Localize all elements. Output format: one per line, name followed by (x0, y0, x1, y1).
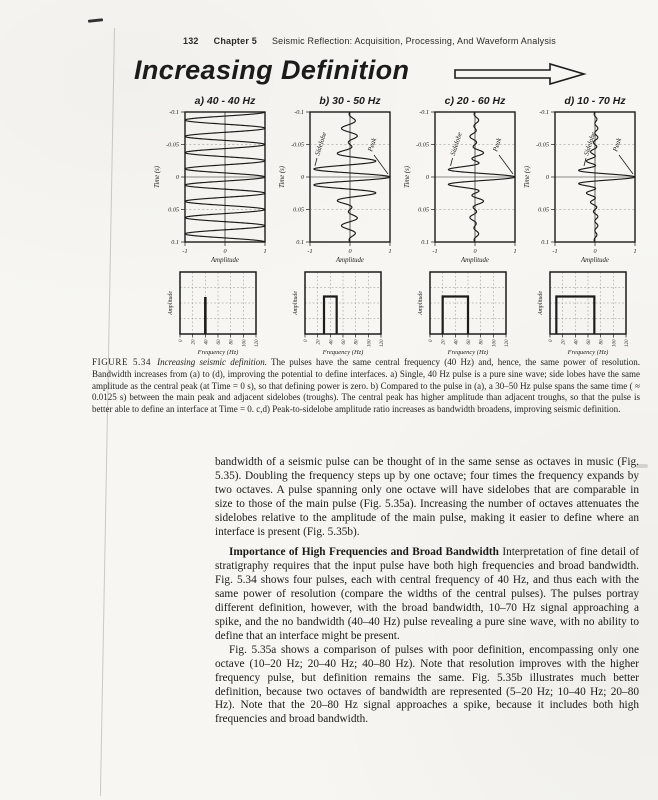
spectrum-panel-c: 020406080100120Frequency (Hz)Amplitude (400, 268, 528, 360)
page-number: 132 (183, 36, 199, 46)
svg-text:Time (s): Time (s) (404, 165, 411, 188)
right-arrow-icon (453, 61, 589, 87)
svg-text:60: 60 (467, 339, 472, 345)
svg-text:100: 100 (612, 339, 617, 347)
chapter-label: Chapter 5 (214, 36, 257, 46)
svg-text:0: 0 (549, 339, 554, 342)
svg-text:-0.05: -0.05 (291, 142, 304, 149)
svg-text:0: 0 (348, 248, 352, 255)
svg-text:20: 20 (442, 339, 447, 345)
svg-text:20: 20 (317, 339, 322, 345)
peak-leader (619, 155, 633, 174)
svg-text:0: 0 (179, 339, 184, 342)
svg-text:Amplitude: Amplitude (293, 291, 299, 316)
spectrum-panel-a: 020406080100120Frequency (Hz)Amplitude (150, 268, 278, 360)
figure-banner-title: Increasing Definition (134, 55, 409, 86)
svg-text:Frequency (Hz): Frequency (Hz) (447, 349, 489, 356)
running-header: 132Chapter 5Seismic Reflection: Acquisit… (183, 36, 556, 46)
peak-label: Peak (491, 136, 504, 154)
svg-text:100: 100 (367, 339, 372, 347)
chapter-title: Seismic Reflection: Acquisition, Process… (272, 36, 556, 46)
svg-text:0.1: 0.1 (296, 239, 304, 246)
sidelobe-label: Sidelobe (449, 131, 464, 156)
figure-caption: FIGURE 5.34Increasing seismic definition… (92, 357, 640, 416)
pulse-panel-d: d) 10 - 70 Hz-0.1-0.0500.050.1-101Amplit… (520, 92, 648, 270)
svg-text:80: 80 (480, 339, 485, 345)
svg-text:1: 1 (633, 248, 636, 255)
svg-text:100: 100 (492, 339, 497, 347)
svg-text:0.05: 0.05 (168, 207, 179, 214)
svg-text:-0.1: -0.1 (539, 109, 549, 116)
svg-text:Amplitude: Amplitude (335, 257, 364, 264)
svg-text:-1: -1 (432, 248, 437, 255)
spectrum-panel-d: 020406080100120Frequency (Hz)Amplitude (520, 268, 648, 360)
svg-text:60: 60 (587, 339, 592, 345)
svg-text:120: 120 (380, 339, 385, 347)
pulse-panel-title: c) 20 - 60 Hz (445, 95, 506, 107)
peak-label: Peak (611, 136, 624, 154)
pulse-panel-a: a) 40 - 40 Hz-0.1-0.0500.050.1-101Amplit… (150, 92, 278, 270)
pulse-panel-title: b) 30 - 50 Hz (319, 95, 381, 107)
svg-text:40: 40 (329, 339, 334, 345)
svg-text:20: 20 (192, 339, 197, 345)
svg-text:Frequency (Hz): Frequency (Hz) (567, 349, 609, 356)
sidelobe-leader (584, 158, 586, 166)
svg-text:Amplitude: Amplitude (210, 257, 239, 264)
svg-text:0: 0 (593, 248, 597, 255)
figure-caption-label: FIGURE 5.34 (92, 357, 151, 367)
sidelobe-label: Sidelobe (313, 131, 328, 156)
svg-text:1: 1 (263, 248, 266, 255)
pulse-panel-title: d) 10 - 70 Hz (564, 95, 626, 107)
svg-text:-0.1: -0.1 (419, 109, 429, 116)
pulse-panel-c: c) 20 - 60 Hz-0.1-0.0500.050.1-101Amplit… (400, 92, 528, 270)
peak-leader (374, 155, 388, 174)
svg-text:0.1: 0.1 (171, 239, 179, 246)
svg-text:-0.1: -0.1 (169, 109, 179, 116)
paragraph-importance: Importance of High Frequencies and Broad… (215, 546, 639, 643)
paragraph-fig535: Fig. 5.35a shows a comparison of pulses … (215, 644, 639, 727)
svg-text:20: 20 (562, 339, 567, 345)
svg-text:-0.1: -0.1 (294, 109, 304, 116)
svg-text:0.05: 0.05 (418, 207, 429, 214)
svg-text:Amplitude: Amplitude (580, 257, 609, 264)
svg-text:120: 120 (505, 339, 510, 347)
peak-label: Peak (366, 136, 379, 154)
svg-text:100: 100 (242, 339, 247, 347)
svg-text:0: 0 (301, 174, 305, 181)
svg-text:0: 0 (223, 248, 227, 255)
sidelobe-leader (315, 158, 317, 166)
svg-text:-0.05: -0.05 (416, 142, 429, 149)
svg-text:-0.05: -0.05 (166, 142, 179, 149)
run-in-heading: Importance of High Frequencies and Broad… (229, 546, 499, 558)
svg-text:0: 0 (546, 174, 550, 181)
svg-text:40: 40 (574, 339, 579, 345)
svg-text:Time (s): Time (s) (524, 165, 531, 188)
svg-text:0: 0 (426, 174, 430, 181)
sidelobe-leader (451, 158, 453, 166)
svg-text:Amplitude: Amplitude (460, 257, 489, 264)
paragraph-importance-text: Interpretation of fine detail of stratig… (215, 546, 639, 641)
svg-text:Time (s): Time (s) (154, 165, 161, 188)
svg-text:Amplitude: Amplitude (168, 291, 174, 316)
book-page: 132Chapter 5Seismic Reflection: Acquisit… (0, 0, 658, 800)
figure-5-34: a) 40 - 40 Hz-0.1-0.0500.050.1-101Amplit… (0, 92, 658, 358)
body-text: bandwidth of a seismic pulse can be thou… (215, 456, 639, 727)
pulse-panel-b: b) 30 - 50 Hz-0.1-0.0500.050.1-101Amplit… (275, 92, 403, 270)
svg-text:120: 120 (255, 339, 260, 347)
svg-text:Frequency (Hz): Frequency (Hz) (197, 349, 239, 356)
svg-text:80: 80 (230, 339, 235, 345)
svg-text:-1: -1 (182, 248, 187, 255)
svg-text:-1: -1 (307, 248, 312, 255)
spectrum-panel-b: 020406080100120Frequency (Hz)Amplitude (275, 268, 403, 360)
svg-text:60: 60 (342, 339, 347, 345)
svg-text:1: 1 (388, 248, 391, 255)
paragraph-continuation: bandwidth of a seismic pulse can be thou… (215, 456, 639, 539)
svg-text:0: 0 (473, 248, 477, 255)
svg-text:0: 0 (429, 339, 434, 342)
svg-text:-0.05: -0.05 (536, 142, 549, 149)
svg-text:Amplitude: Amplitude (538, 291, 544, 316)
svg-text:Amplitude: Amplitude (418, 291, 424, 316)
pulse-panel-title: a) 40 - 40 Hz (195, 95, 256, 107)
scan-artifact-dash (88, 18, 103, 23)
svg-text:0: 0 (304, 339, 309, 342)
svg-text:120: 120 (625, 339, 630, 347)
peak-leader (499, 155, 513, 174)
svg-text:1: 1 (513, 248, 516, 255)
svg-text:0.1: 0.1 (541, 239, 549, 246)
figure-caption-title: Increasing seismic definition. (157, 357, 267, 367)
svg-text:40: 40 (454, 339, 459, 345)
svg-text:0: 0 (176, 174, 180, 181)
svg-text:80: 80 (355, 339, 360, 345)
svg-text:0.1: 0.1 (421, 239, 429, 246)
svg-text:Time (s): Time (s) (279, 165, 286, 188)
svg-text:-1: -1 (552, 248, 557, 255)
svg-text:Frequency (Hz): Frequency (Hz) (322, 349, 364, 356)
svg-text:40: 40 (204, 339, 209, 345)
svg-text:0.05: 0.05 (293, 207, 304, 214)
svg-text:80: 80 (600, 339, 605, 345)
svg-text:60: 60 (217, 339, 222, 345)
svg-text:0.05: 0.05 (538, 207, 549, 214)
